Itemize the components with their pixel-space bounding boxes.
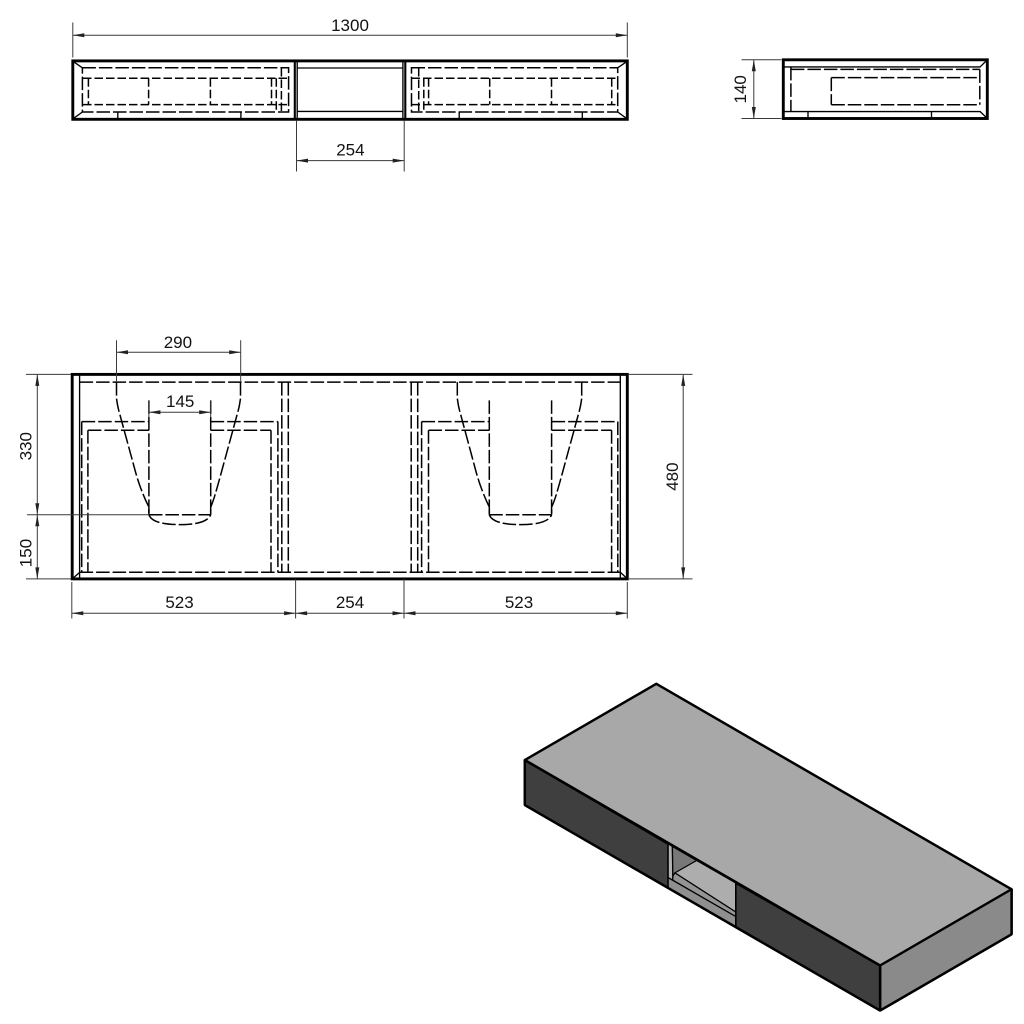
svg-text:1300: 1300 (331, 16, 369, 35)
svg-text:330: 330 (17, 432, 36, 460)
svg-text:523: 523 (165, 593, 193, 612)
svg-text:150: 150 (17, 539, 36, 567)
svg-text:254: 254 (336, 141, 364, 160)
svg-text:290: 290 (164, 333, 192, 352)
svg-text:254: 254 (336, 593, 364, 612)
svg-text:145: 145 (166, 392, 194, 411)
svg-text:480: 480 (663, 462, 682, 490)
svg-text:523: 523 (505, 593, 533, 612)
svg-text:140: 140 (731, 75, 750, 103)
